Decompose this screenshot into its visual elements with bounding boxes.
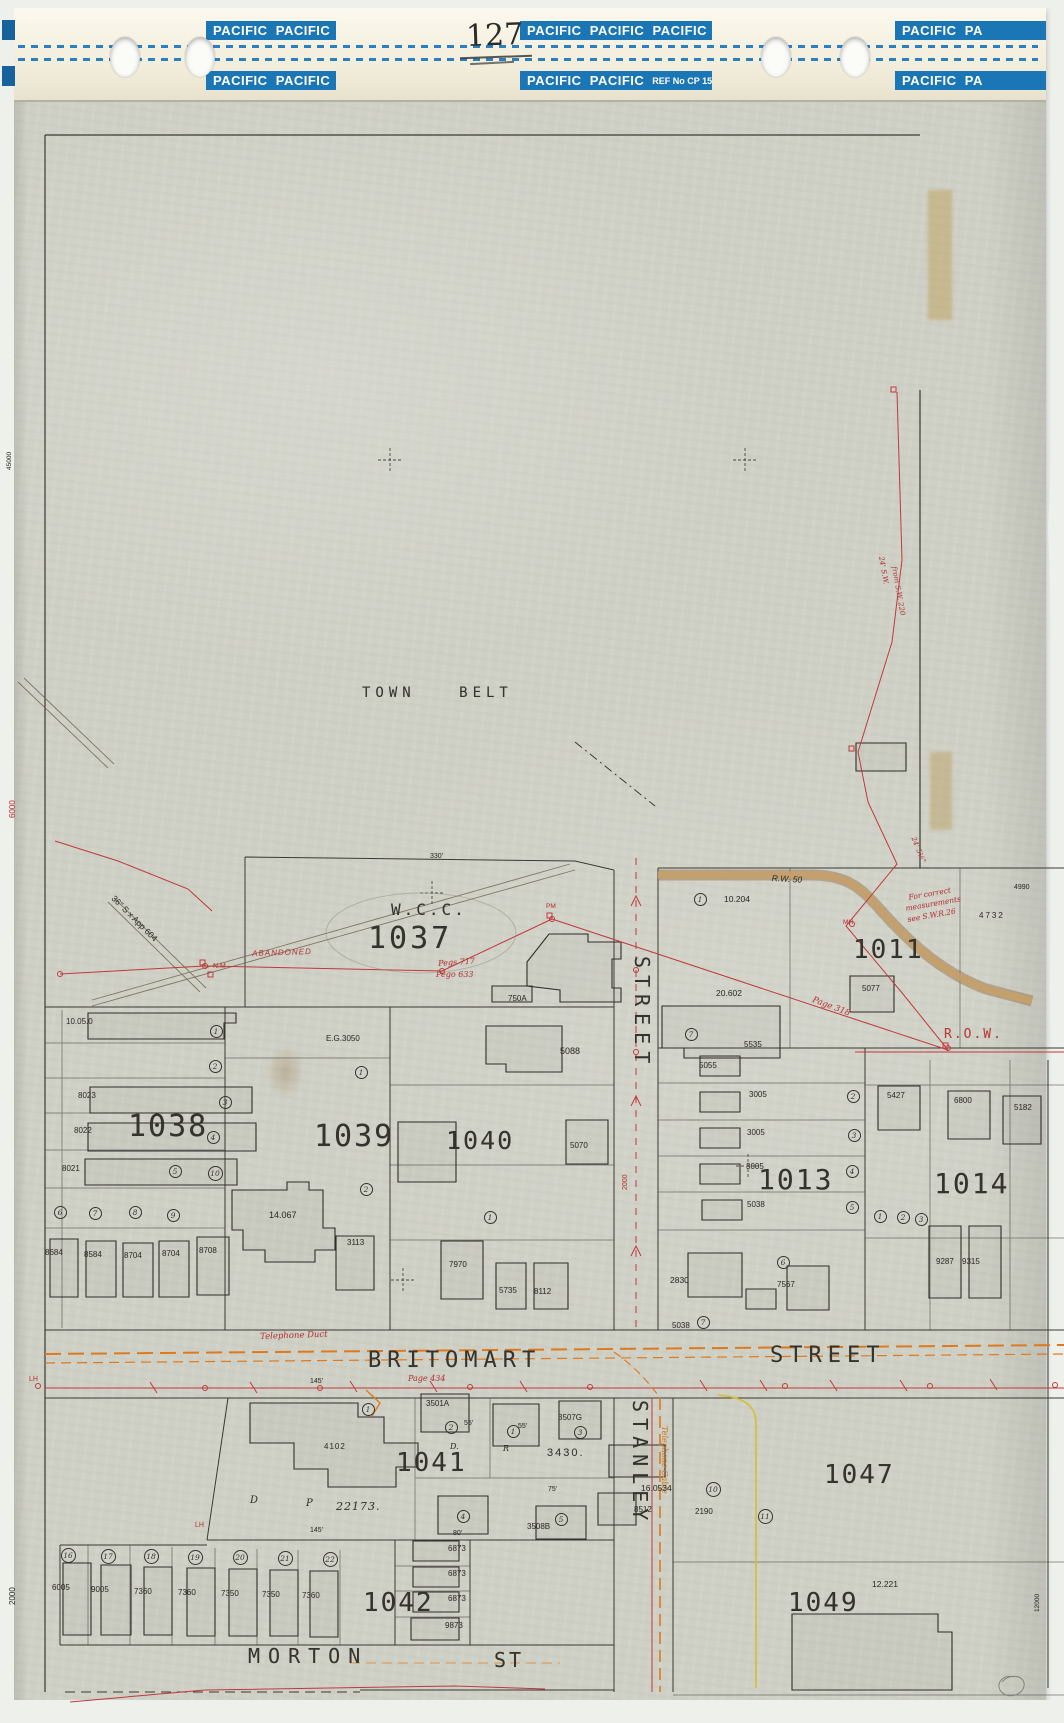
tape-brand-box: PACIFIC PACIFIC — [206, 21, 336, 40]
tape-brand-label: PACIFIC PACIFIC — [213, 73, 330, 88]
punch-hole — [185, 37, 215, 77]
scanned-survey-map-sheet: TOWN BELTW.C.C.1037103810391040101110131… — [0, 0, 1064, 1723]
parcel-lines — [45, 742, 1064, 1695]
buildings — [50, 743, 1041, 1690]
page-number: 127 — [465, 17, 523, 54]
tape-dashed-line — [18, 58, 1038, 61]
wcc-parcel-oval — [326, 893, 516, 973]
binder-tab — [2, 20, 15, 40]
tape-brand-box: PACIFIC PACIFICREF No CP 15 — [520, 71, 712, 90]
punch-hole — [840, 37, 870, 77]
right-of-way-road-band — [658, 875, 1032, 1001]
page-number-underline — [470, 61, 514, 65]
signature-scribble — [999, 1676, 1024, 1696]
tape-brand-box: PACIFIC PACIFIC PACIFIC — [520, 21, 712, 40]
tape-brand-label: PACIFIC PA — [902, 73, 983, 88]
abandoned-pipe-lines — [18, 678, 575, 1006]
tape-dashed-line — [18, 45, 1038, 48]
tape-brand-box: PACIFIC PACIFIC — [206, 71, 336, 90]
tape-brand-label: PACIFIC PACIFIC PACIFIC — [527, 23, 707, 38]
tape-brand-label: PACIFIC PACIFIC — [213, 23, 330, 38]
binder-tab — [2, 66, 15, 86]
map-frame — [45, 135, 920, 1692]
map-linework-svg — [0, 0, 1064, 1723]
yellow-boundary-line — [718, 1395, 756, 1688]
tape-brand-label: PACIFIC PACIFIC — [527, 73, 644, 88]
tape-ref-label: REF No CP 15 — [652, 76, 712, 86]
tape-brand-box: PACIFIC PA — [895, 71, 1046, 90]
punch-hole — [761, 37, 791, 77]
punch-hole — [110, 37, 140, 77]
tape-brand-label: PACIFIC PA — [902, 23, 983, 38]
binding-tape-header: PACIFIC PACIFICPACIFIC PACIFIC PACIFICPA… — [14, 8, 1046, 102]
tape-brand-box: PACIFIC PA — [895, 21, 1046, 40]
